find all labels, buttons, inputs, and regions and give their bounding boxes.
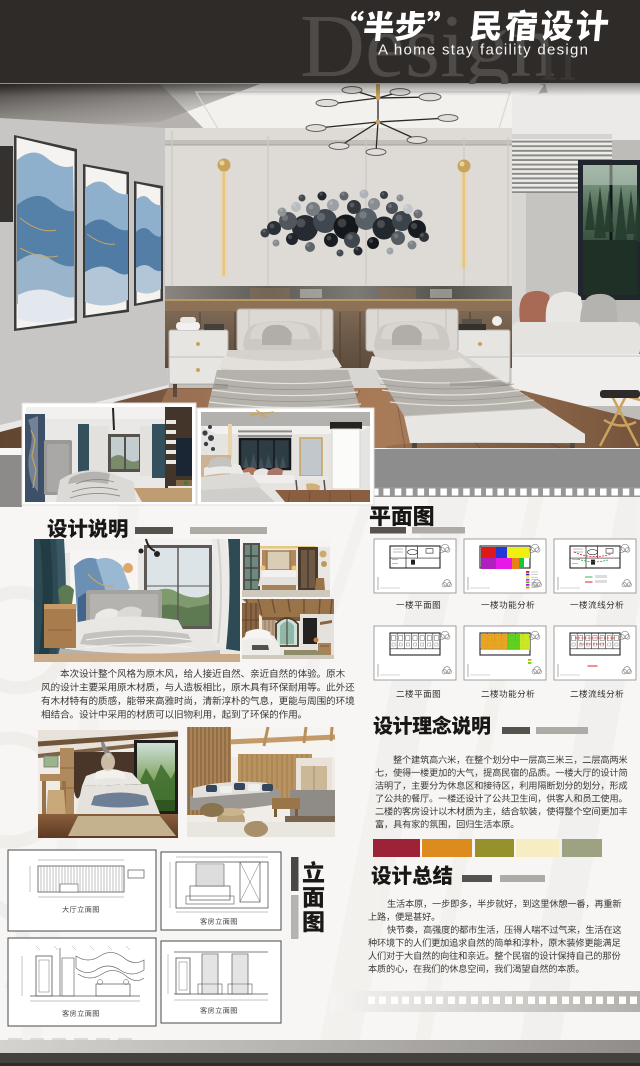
svg-text:A home stay facility design: A home stay facility design <box>378 42 588 59</box>
